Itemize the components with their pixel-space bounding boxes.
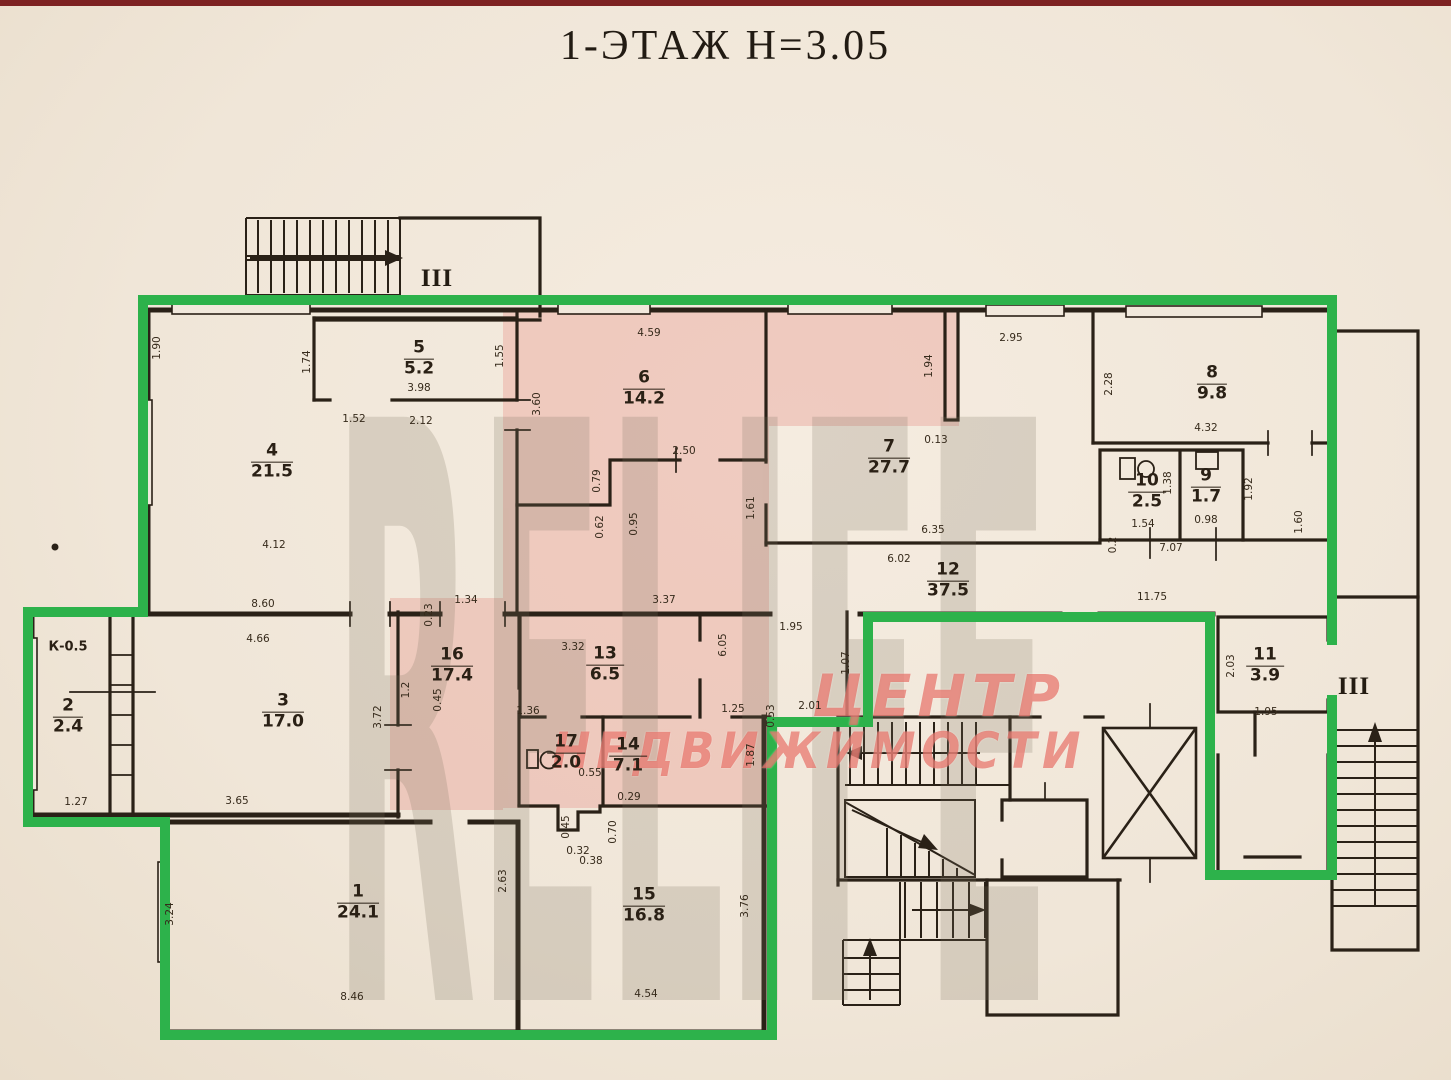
toilet-icon xyxy=(1120,458,1135,479)
ink-dot xyxy=(52,544,59,551)
sink-icon xyxy=(1196,452,1218,469)
watermark-agency-line2: НЕДВИЖИМОСТИ xyxy=(552,722,1086,780)
watermark-agency-line1: ЦЕНТР xyxy=(812,662,1066,730)
floorplan: RELIFE ЦЕНТР НЕДВИЖИМОСТИ 124.122.4317.0… xyxy=(0,0,1451,1080)
floorplan-drawing: RELIFE xyxy=(0,0,1451,1080)
elevator-shaft xyxy=(1103,728,1196,858)
